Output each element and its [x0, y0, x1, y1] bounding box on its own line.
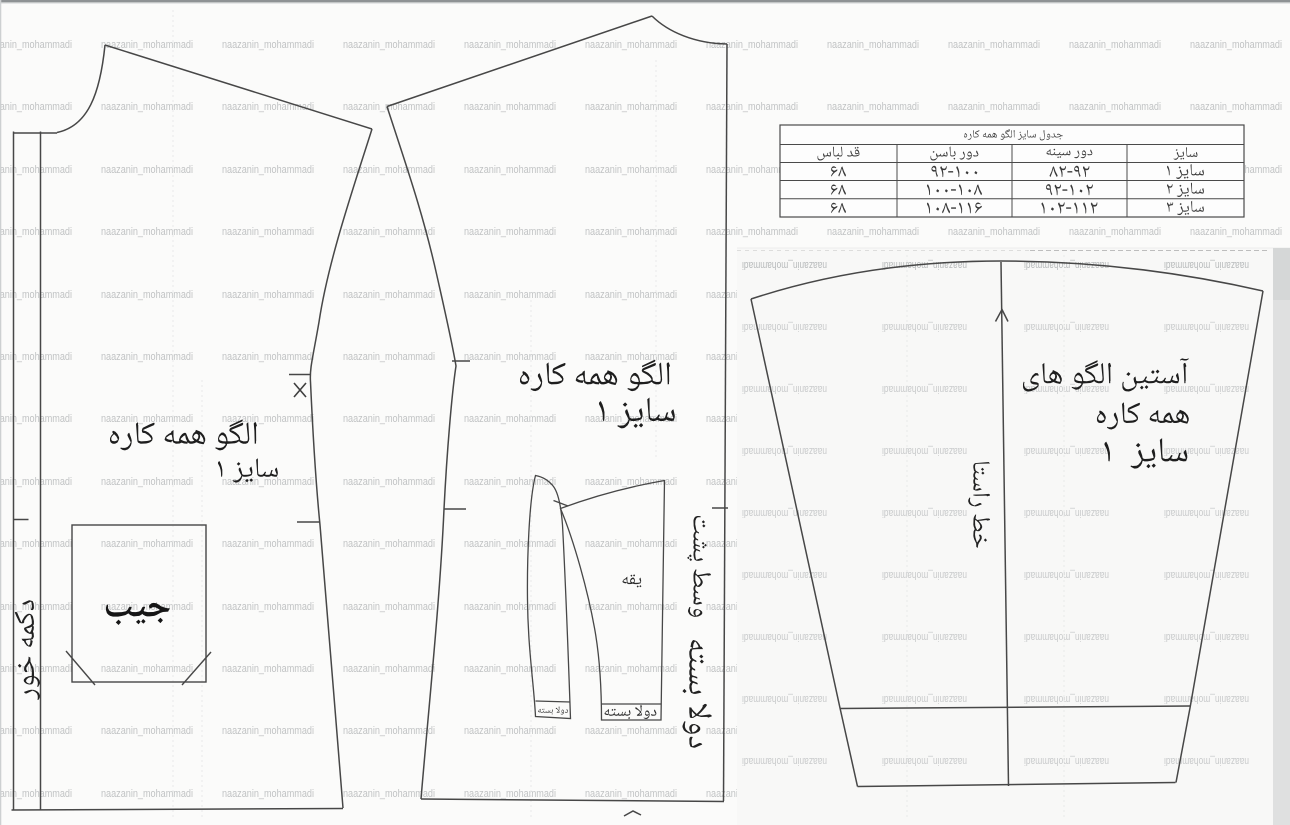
- svg-text:naazanin_mohammadi: naazanin_mohammadi: [222, 289, 314, 301]
- svg-text:naazanin_mohammadi: naazanin_mohammadi: [1024, 445, 1109, 457]
- svg-text:naazanin_mohammadi: naazanin_mohammadi: [101, 788, 193, 800]
- svg-text:naazanin_mohammadi: naazanin_mohammadi: [1024, 755, 1109, 767]
- svg-text:naazanin_mohammadi: naazanin_mohammadi: [343, 413, 435, 425]
- svg-text:naazanin_mohammadi: naazanin_mohammadi: [585, 39, 677, 51]
- svg-text:naazanin_mohammadi: naazanin_mohammadi: [585, 725, 677, 737]
- svg-text:naazanin_mohammadi: naazanin_mohammadi: [343, 538, 435, 550]
- svg-text:naazanin_mohammadi: naazanin_mohammadi: [742, 693, 827, 705]
- svg-text:naazanin_mohammadi: naazanin_mohammadi: [343, 39, 435, 51]
- svg-text:naazanin_mohammadi: naazanin_mohammadi: [1024, 569, 1109, 581]
- svg-text:naazanin_mohammadi: naazanin_mohammadi: [0, 788, 72, 800]
- svg-text:naazanin_mohammadi: naazanin_mohammadi: [706, 39, 798, 51]
- svg-text:naazanin_mohammadi: naazanin_mohammadi: [0, 725, 72, 737]
- svg-text:naazanin_mohammadi: naazanin_mohammadi: [948, 39, 1040, 51]
- svg-text:naazanin_mohammadi: naazanin_mohammadi: [1164, 569, 1249, 581]
- svg-text:naazanin_mohammadi: naazanin_mohammadi: [585, 101, 677, 113]
- svg-text:naazanin_mohammadi: naazanin_mohammadi: [706, 226, 798, 238]
- svg-text:naazanin_mohammadi: naazanin_mohammadi: [0, 164, 72, 176]
- svg-text:naazanin_mohammadi: naazanin_mohammadi: [101, 101, 193, 113]
- svg-text:naazanin_mohammadi: naazanin_mohammadi: [742, 383, 827, 395]
- svg-text:naazanin_mohammadi: naazanin_mohammadi: [827, 39, 919, 51]
- svg-text:naazanin_mohammadi: naazanin_mohammadi: [585, 351, 677, 363]
- svg-text:naazanin_mohammadi: naazanin_mohammadi: [222, 226, 314, 238]
- svg-text:naazanin_mohammadi: naazanin_mohammadi: [101, 476, 193, 488]
- svg-text:naazanin_mohammadi: naazanin_mohammadi: [0, 413, 72, 425]
- svg-text:naazanin_mohammadi: naazanin_mohammadi: [464, 725, 556, 737]
- svg-text:naazanin_mohammadi: naazanin_mohammadi: [0, 226, 72, 238]
- svg-text:naazanin_mohammadi: naazanin_mohammadi: [343, 663, 435, 675]
- svg-text:naazanin_mohammadi: naazanin_mohammadi: [343, 226, 435, 238]
- svg-text:naazanin_mohammadi: naazanin_mohammadi: [1024, 507, 1109, 519]
- svg-text:naazanin_mohammadi: naazanin_mohammadi: [0, 538, 72, 550]
- svg-text:naazanin_mohammadi: naazanin_mohammadi: [343, 601, 435, 613]
- svg-text:naazanin_mohammadi: naazanin_mohammadi: [343, 476, 435, 488]
- svg-text:naazanin_mohammadi: naazanin_mohammadi: [948, 226, 1040, 238]
- svg-text:naazanin_mohammadi: naazanin_mohammadi: [464, 413, 556, 425]
- svg-text:naazanin_mohammadi: naazanin_mohammadi: [464, 164, 556, 176]
- svg-text:naazanin_mohammadi: naazanin_mohammadi: [222, 725, 314, 737]
- svg-text:naazanin_mohammadi: naazanin_mohammadi: [1164, 383, 1249, 395]
- svg-text:naazanin_mohammadi: naazanin_mohammadi: [101, 289, 193, 301]
- svg-text:naazanin_mohammadi: naazanin_mohammadi: [882, 507, 967, 519]
- svg-text:naazanin_mohammadi: naazanin_mohammadi: [343, 725, 435, 737]
- svg-text:naazanin_mohammadi: naazanin_mohammadi: [827, 226, 919, 238]
- svg-text:naazanin_mohammadi: naazanin_mohammadi: [0, 663, 72, 675]
- svg-text:naazanin_mohammadi: naazanin_mohammadi: [1164, 321, 1249, 333]
- svg-text:naazanin_mohammadi: naazanin_mohammadi: [464, 226, 556, 238]
- svg-text:naazanin_mohammadi: naazanin_mohammadi: [222, 601, 314, 613]
- svg-text:naazanin_mohammadi: naazanin_mohammadi: [222, 164, 314, 176]
- svg-text:naazanin_mohammadi: naazanin_mohammadi: [1164, 755, 1249, 767]
- svg-text:naazanin_mohammadi: naazanin_mohammadi: [222, 663, 314, 675]
- svg-text:naazanin_mohammadi: naazanin_mohammadi: [1069, 101, 1161, 113]
- svg-text:naazanin_mohammadi: naazanin_mohammadi: [101, 538, 193, 550]
- svg-text:naazanin_mohammadi: naazanin_mohammadi: [585, 164, 677, 176]
- svg-text:naazanin_mohammadi: naazanin_mohammadi: [585, 226, 677, 238]
- svg-text:naazanin_mohammadi: naazanin_mohammadi: [882, 383, 967, 395]
- svg-text:naazanin_mohammadi: naazanin_mohammadi: [343, 351, 435, 363]
- svg-text:naazanin_mohammadi: naazanin_mohammadi: [0, 289, 72, 301]
- svg-text:naazanin_mohammadi: naazanin_mohammadi: [1190, 101, 1282, 113]
- svg-text:naazanin_mohammadi: naazanin_mohammadi: [464, 788, 556, 800]
- svg-text:naazanin_mohammadi: naazanin_mohammadi: [882, 321, 967, 333]
- svg-text:naazanin_mohammadi: naazanin_mohammadi: [706, 101, 798, 113]
- svg-text:naazanin_mohammadi: naazanin_mohammadi: [101, 413, 193, 425]
- svg-text:naazanin_mohammadi: naazanin_mohammadi: [0, 101, 72, 113]
- svg-text:naazanin_mohammadi: naazanin_mohammadi: [1024, 383, 1109, 395]
- svg-text:naazanin_mohammadi: naazanin_mohammadi: [1024, 321, 1109, 333]
- svg-text:naazanin_mohammadi: naazanin_mohammadi: [742, 755, 827, 767]
- svg-text:naazanin_mohammadi: naazanin_mohammadi: [585, 476, 677, 488]
- svg-text:naazanin_mohammadi: naazanin_mohammadi: [101, 164, 193, 176]
- svg-text:naazanin_mohammadi: naazanin_mohammadi: [882, 569, 967, 581]
- svg-text:naazanin_mohammadi: naazanin_mohammadi: [882, 755, 967, 767]
- svg-text:naazanin_mohammadi: naazanin_mohammadi: [1024, 693, 1109, 705]
- svg-text:naazanin_mohammadi: naazanin_mohammadi: [948, 101, 1040, 113]
- svg-text:naazanin_mohammadi: naazanin_mohammadi: [222, 351, 314, 363]
- svg-text:naazanin_mohammadi: naazanin_mohammadi: [1190, 39, 1282, 51]
- svg-text:naazanin_mohammadi: naazanin_mohammadi: [882, 693, 967, 705]
- svg-text:naazanin_mohammadi: naazanin_mohammadi: [464, 663, 556, 675]
- svg-text:naazanin_mohammadi: naazanin_mohammadi: [464, 289, 556, 301]
- svg-text:naazanin_mohammadi: naazanin_mohammadi: [742, 259, 827, 271]
- svg-text:naazanin_mohammadi: naazanin_mohammadi: [464, 101, 556, 113]
- svg-text:naazanin_mohammadi: naazanin_mohammadi: [222, 538, 314, 550]
- svg-text:naazanin_mohammadi: naazanin_mohammadi: [742, 321, 827, 333]
- svg-text:naazanin_mohammadi: naazanin_mohammadi: [343, 289, 435, 301]
- svg-text:naazanin_mohammadi: naazanin_mohammadi: [1164, 631, 1249, 643]
- svg-text:naazanin_mohammadi: naazanin_mohammadi: [827, 101, 919, 113]
- svg-text:naazanin_mohammadi: naazanin_mohammadi: [1069, 39, 1161, 51]
- svg-text:naazanin_mohammadi: naazanin_mohammadi: [101, 351, 193, 363]
- svg-text:naazanin_mohammadi: naazanin_mohammadi: [882, 445, 967, 457]
- svg-text:naazanin_mohammadi: naazanin_mohammadi: [222, 39, 314, 51]
- svg-text:naazanin_mohammadi: naazanin_mohammadi: [882, 259, 967, 271]
- svg-text:naazanin_mohammadi: naazanin_mohammadi: [101, 725, 193, 737]
- svg-text:naazanin_mohammadi: naazanin_mohammadi: [1164, 259, 1249, 271]
- svg-text:naazanin_mohammadi: naazanin_mohammadi: [464, 538, 556, 550]
- svg-text:naazanin_mohammadi: naazanin_mohammadi: [585, 289, 677, 301]
- svg-text:naazanin_mohammadi: naazanin_mohammadi: [222, 788, 314, 800]
- svg-text:naazanin_mohammadi: naazanin_mohammadi: [742, 631, 827, 643]
- svg-text:naazanin_mohammadi: naazanin_mohammadi: [585, 788, 677, 800]
- svg-text:naazanin_mohammadi: naazanin_mohammadi: [1069, 226, 1161, 238]
- svg-text:naazanin_mohammadi: naazanin_mohammadi: [742, 569, 827, 581]
- svg-text:naazanin_mohammadi: naazanin_mohammadi: [464, 351, 556, 363]
- svg-text:naazanin_mohammadi: naazanin_mohammadi: [1024, 631, 1109, 643]
- svg-text:naazanin_mohammadi: naazanin_mohammadi: [1164, 693, 1249, 705]
- svg-text:naazanin_mohammadi: naazanin_mohammadi: [101, 226, 193, 238]
- svg-text:naazanin_mohammadi: naazanin_mohammadi: [1190, 226, 1282, 238]
- svg-text:naazanin_mohammadi: naazanin_mohammadi: [882, 631, 967, 643]
- svg-text:naazanin_mohammadi: naazanin_mohammadi: [0, 39, 72, 51]
- svg-text:naazanin_mohammadi: naazanin_mohammadi: [101, 663, 193, 675]
- svg-text:naazanin_mohammadi: naazanin_mohammadi: [0, 601, 72, 613]
- svg-text:naazanin_mohammadi: naazanin_mohammadi: [0, 351, 72, 363]
- svg-text:naazanin_mohammadi: naazanin_mohammadi: [464, 39, 556, 51]
- svg-text:naazanin_mohammadi: naazanin_mohammadi: [101, 39, 193, 51]
- svg-text:naazanin_mohammadi: naazanin_mohammadi: [101, 601, 193, 613]
- svg-text:naazanin_mohammadi: naazanin_mohammadi: [464, 601, 556, 613]
- svg-text:naazanin_mohammadi: naazanin_mohammadi: [1164, 507, 1249, 519]
- svg-text:naazanin_mohammadi: naazanin_mohammadi: [742, 507, 827, 519]
- svg-text:naazanin_mohammadi: naazanin_mohammadi: [0, 476, 72, 488]
